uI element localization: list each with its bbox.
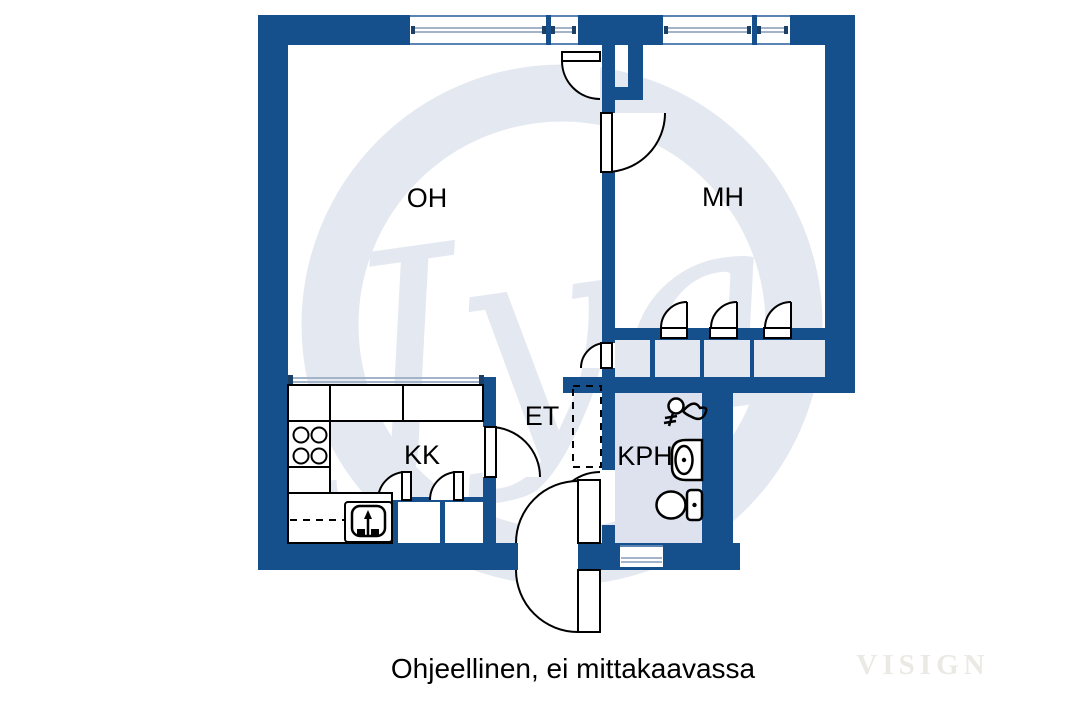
wall-left xyxy=(258,15,288,570)
wall-kph-west-upper xyxy=(602,390,615,470)
wall-kk-east-upper xyxy=(483,377,496,427)
kk-cabinet-mullion xyxy=(440,502,445,543)
window-oh xyxy=(410,15,578,45)
kk-cabinet-door xyxy=(402,472,411,500)
wall-oh-mh-stub xyxy=(602,368,615,390)
closet-compartment xyxy=(704,340,750,377)
floorplan-svg: Jya xyxy=(0,0,1066,711)
closet-mullion xyxy=(700,340,704,377)
kk-door xyxy=(485,427,496,477)
window-mh xyxy=(663,15,790,45)
kk-cabinet-compartment xyxy=(398,502,440,543)
room-label-kk: KK xyxy=(404,440,440,470)
closet-door xyxy=(764,328,791,338)
wall-kph-west-lower xyxy=(602,525,615,543)
closet-compartment xyxy=(753,340,825,377)
room-label-mh: MH xyxy=(702,182,744,212)
caption: Ohjeellinen, ei mittakaavassa xyxy=(323,653,823,685)
mh-door xyxy=(601,113,612,172)
closet-mullion xyxy=(750,340,754,377)
room-label-kph: KPH xyxy=(617,441,673,471)
window-divider xyxy=(752,15,757,45)
room-label-et: ET xyxy=(525,401,560,431)
wall-niche-bottom xyxy=(602,87,643,100)
entrance-opening xyxy=(518,541,578,572)
toilet-icon xyxy=(657,492,686,519)
shower-icon xyxy=(669,399,684,414)
floorplan-canvas: Jya xyxy=(0,0,1066,711)
entrance-inner-door xyxy=(578,480,600,543)
wall-kph-east xyxy=(702,393,733,570)
kk-counter-top xyxy=(288,385,483,421)
kk-cabinet-compartment xyxy=(445,502,483,543)
closet-door xyxy=(710,328,737,338)
brand-logo: VISIGN xyxy=(843,649,1003,682)
closet-mullion xyxy=(650,340,655,377)
window-kph xyxy=(620,545,663,567)
closet-compartment xyxy=(615,340,650,377)
niche-door xyxy=(562,52,600,61)
wall-oh-mh-lower xyxy=(602,172,615,343)
closet-compartment xyxy=(655,340,700,377)
wall-oh-mh-upper xyxy=(602,45,615,113)
entrance-outer-door xyxy=(578,570,600,632)
wall-bottom xyxy=(258,543,740,570)
room-label-oh: OH xyxy=(407,183,448,213)
window-divider xyxy=(546,15,551,45)
wall-right xyxy=(825,15,855,393)
wall-kk-east-lower xyxy=(483,477,496,543)
closet-door-west xyxy=(601,343,612,368)
closet-door xyxy=(661,328,687,338)
kk-cabinet-door xyxy=(454,472,463,500)
